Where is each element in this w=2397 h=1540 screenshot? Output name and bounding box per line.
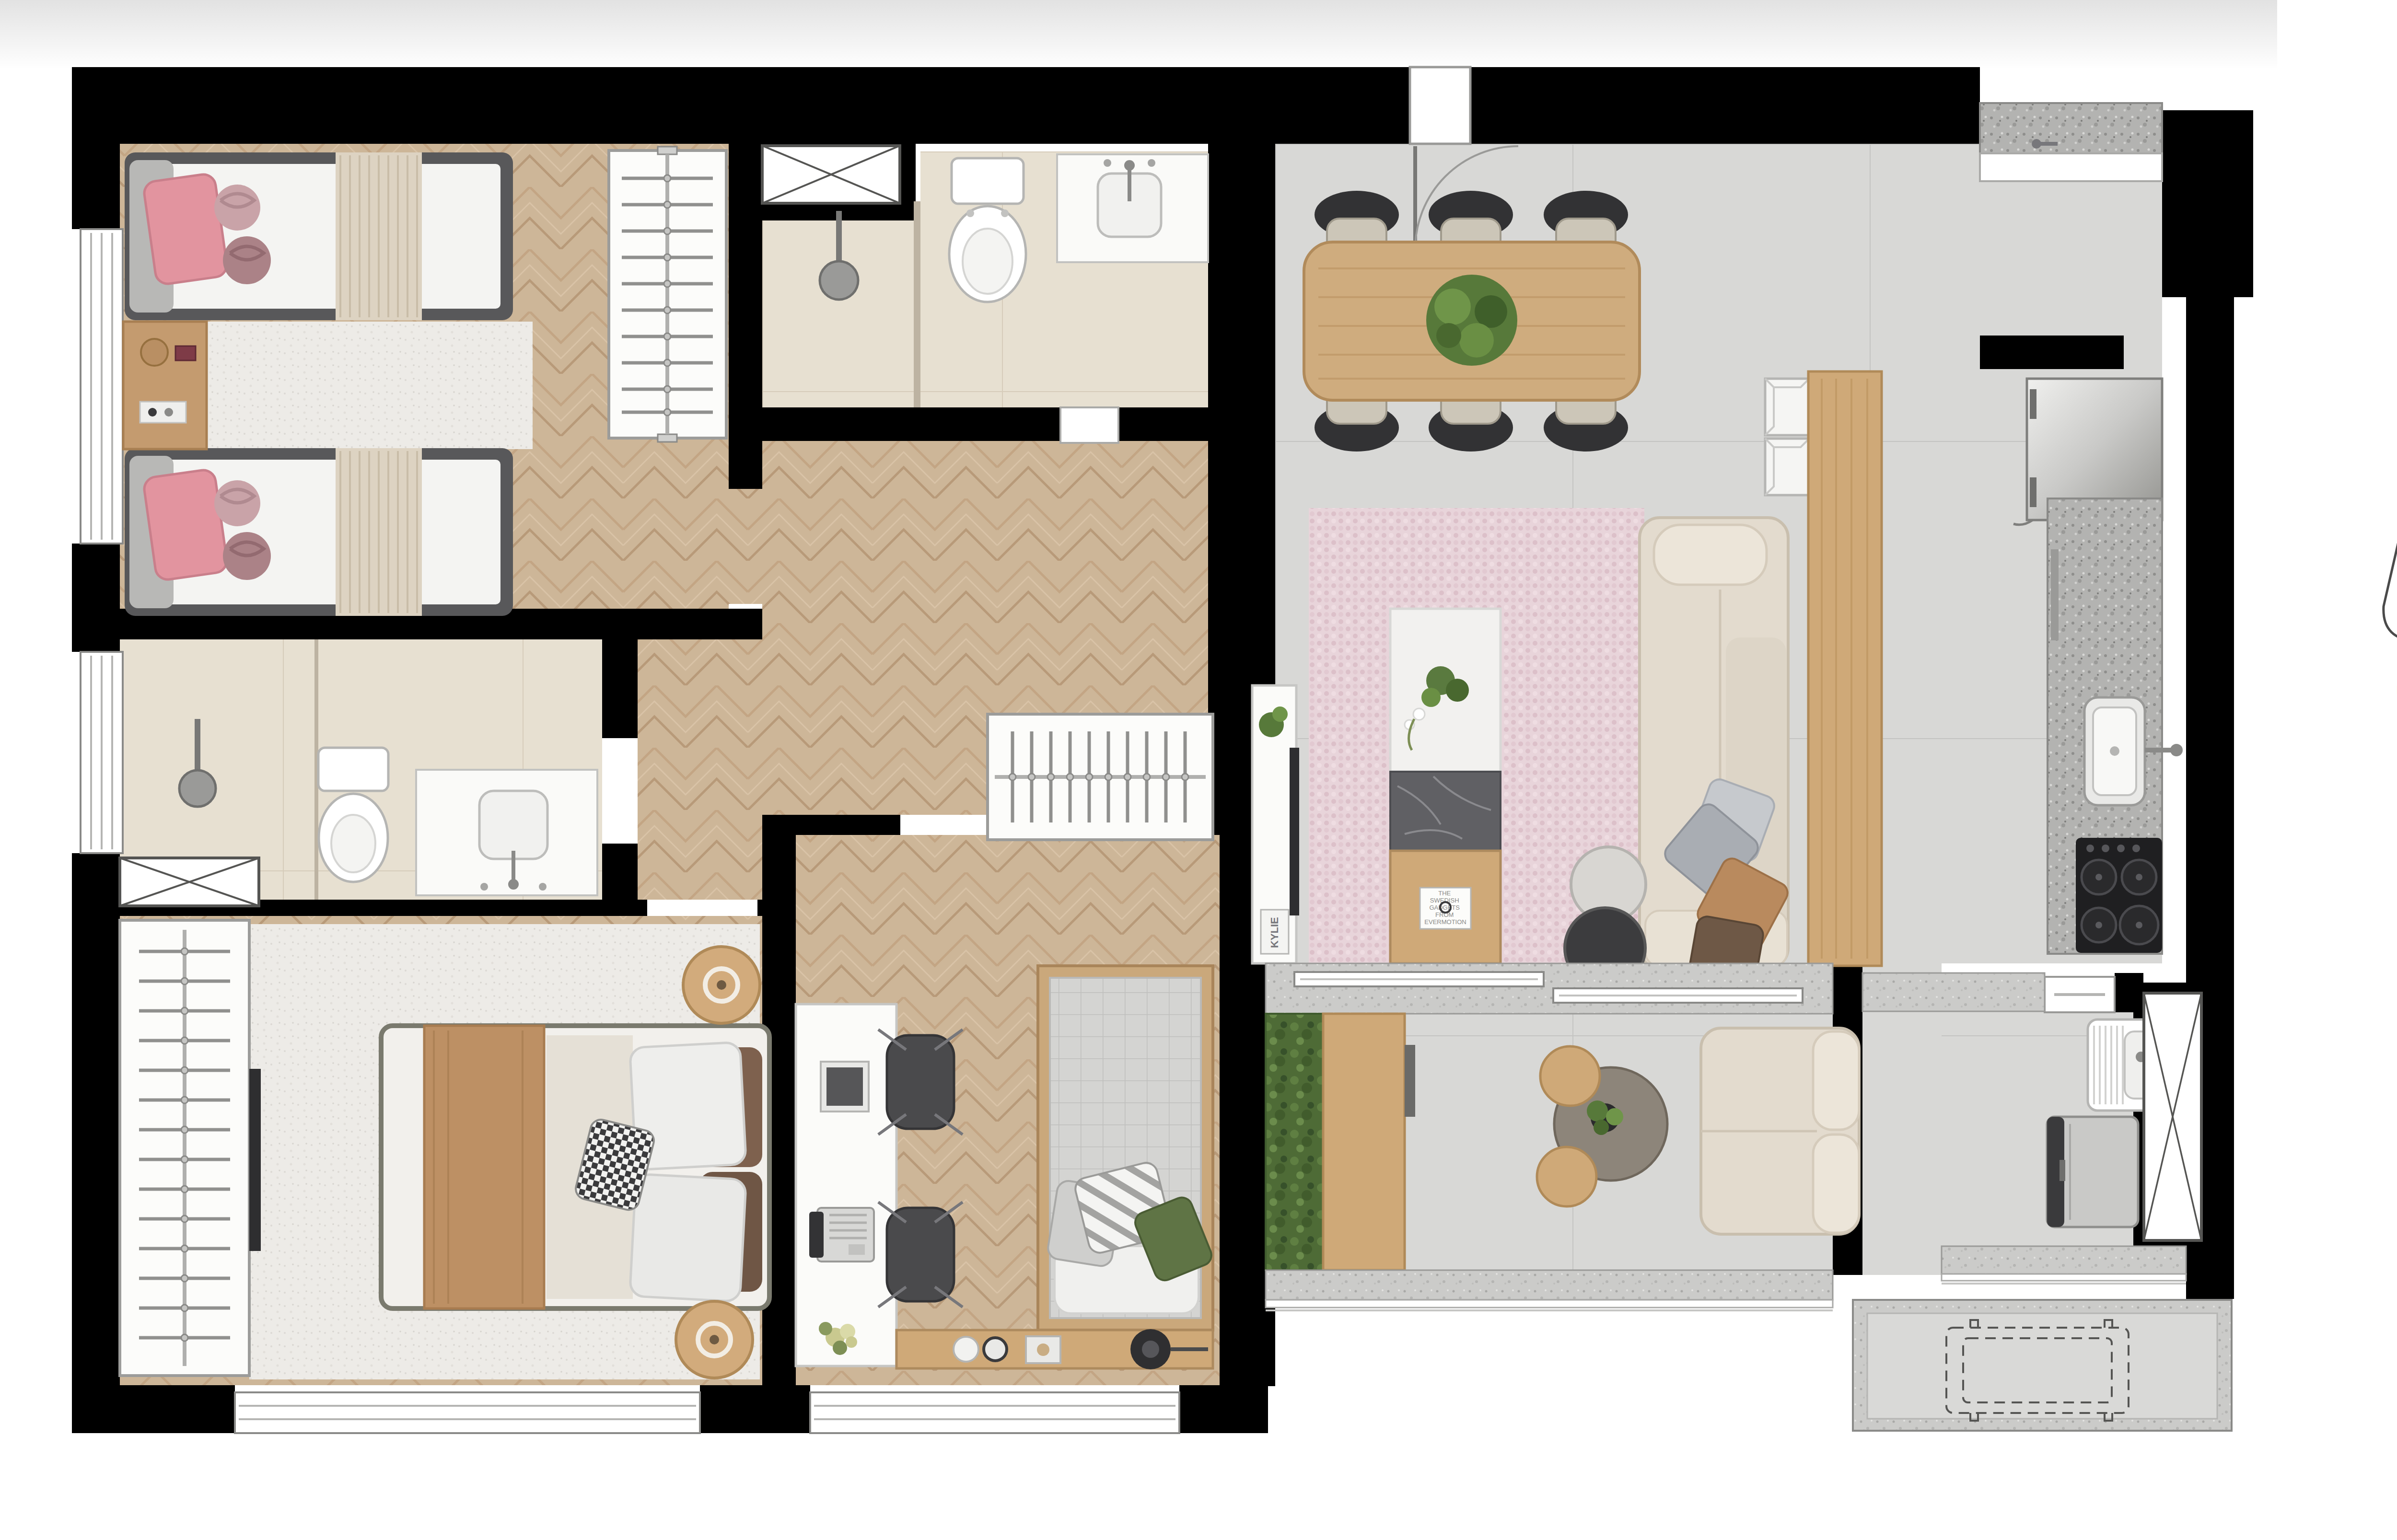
desk-books [821,1062,869,1112]
hall-closet [988,714,1213,840]
tv-console-living: KYLIE [1252,685,1299,963]
toilet-2 [318,748,388,882]
wood-panel [1808,371,1882,966]
site-plan: AVENIDA PREFEITO HIRANT SANAZAR 5 4 6 3 … [2373,144,2397,863]
dining-plant [1426,275,1517,366]
ac-ledge-top [1980,103,2162,181]
sideboard [896,1329,1213,1369]
floor-plan: KYLIE THE SWEDISH GADGETS FROM EVERMOTIO… [0,0,2277,1540]
tv-master [249,1069,261,1251]
balcony-slider-sill [1266,963,1833,1014]
green-wall [1266,1014,1323,1270]
window-bathroom2 [81,652,123,853]
side-table-master-2 [676,1301,753,1378]
balcony-counter [1323,1014,1415,1270]
rug-bedroom1 [207,322,533,449]
single-bed [1038,966,1215,1330]
cooktop [2076,838,2162,953]
desk [796,1004,896,1366]
wardrobe-rack-master [120,920,249,1376]
window-bedroom1 [81,229,123,544]
service-shaft [2144,993,2201,1240]
top-shadow-gradient [0,0,2277,69]
shaft-box-1 [762,146,900,203]
vanity-1 [1057,154,1208,262]
bathroom1-door [1060,407,1118,443]
vanity-2 [416,770,597,895]
shaft-box-2 [120,858,259,906]
window-master [235,1392,700,1433]
book-kylie-label: KYLIE [1268,917,1280,948]
twin-bed-2 [125,448,513,616]
wardrobe-rack-bedroom1 [609,147,726,442]
service-door [2045,977,2115,1012]
laptop [809,1208,874,1262]
twin-bed-1 [125,152,513,320]
balcony-stool-2 [1537,1147,1596,1206]
balcony-stool-1 [1540,1046,1600,1106]
balcony-outer-sill [1266,1270,1833,1308]
coffee-table-book: THE SWEDISH GADGETS FROM EVERMOTION [1420,888,1471,929]
washing-machine [2047,1117,2138,1227]
property-boundary [2384,221,2397,647]
office-chair-2 [878,1202,963,1307]
service-sill [1862,973,2045,1011]
office-chair-1 [878,1030,963,1135]
balcony-sofa [1701,1028,1859,1234]
bedroom-master [120,920,769,1379]
side-table-master-1 [683,947,760,1023]
service-outer-sill [1942,1246,2186,1281]
bedroom-1-door-floor [729,489,762,604]
page: KYLIE THE SWEDISH GADGETS FROM EVERMOTIO… [0,0,2397,1540]
ac-condenser-area [1853,1300,2232,1431]
double-bed [381,1026,769,1308]
kitchen-counter [2048,498,2183,954]
coffee-table-set: THE SWEDISH GADGETS FROM EVERMOTION [1390,609,1501,963]
nightstand [123,322,207,449]
window-office [810,1392,1179,1433]
toilet-1 [949,158,1026,302]
sofa-living [1640,518,1791,993]
dining-table [1304,242,1640,400]
